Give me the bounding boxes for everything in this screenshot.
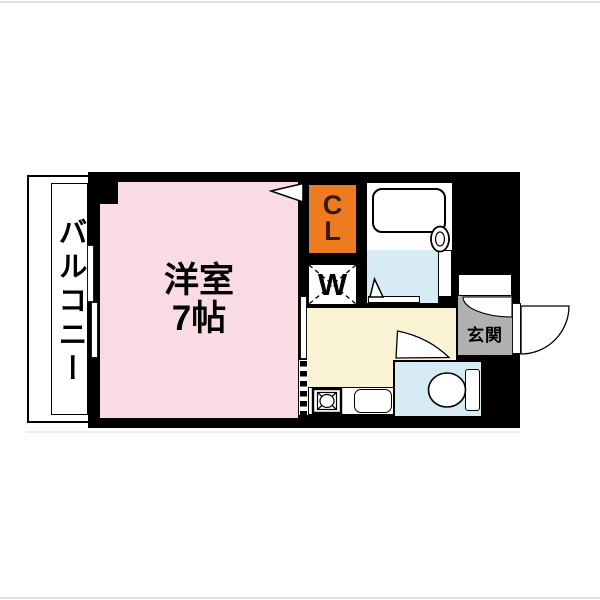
bathtub <box>372 188 446 233</box>
kitchen-floor-lower <box>307 360 395 387</box>
washer-label: W <box>307 263 358 306</box>
shoe-cabinet <box>458 274 512 296</box>
room-size-label: 7帖 <box>172 300 226 338</box>
room-name-label: 洋室 <box>164 262 234 300</box>
closet-box: C L <box>307 183 358 255</box>
toilet-tank <box>465 369 480 411</box>
balcony-window-pane-2 <box>91 302 98 358</box>
page-frame-bottom-line <box>0 597 600 599</box>
entrance-label: 玄関 <box>456 316 514 350</box>
kitchen-sink <box>354 389 392 413</box>
balcony-window-pane-1 <box>87 245 94 302</box>
closet-letter-l: L <box>324 219 341 245</box>
entrance-door-swing <box>521 306 569 354</box>
main-room-label: 洋室 7帖 <box>104 252 294 348</box>
balcony-label: バルコニー <box>53 192 87 412</box>
floor-plan: バルコニー 洋室 7帖 C L W 玄関 <box>0 0 600 600</box>
room-kitchen-doorway <box>300 296 307 359</box>
plan-shadow-line <box>26 431 520 433</box>
kitchen-floor-upper <box>307 308 456 360</box>
bathroom-counter <box>438 250 452 297</box>
main-room-corner-wall <box>100 182 118 204</box>
page-frame-top-line <box>0 1 600 3</box>
bathroom-threshold <box>368 296 420 303</box>
kitchen-partition-backing <box>299 360 308 415</box>
